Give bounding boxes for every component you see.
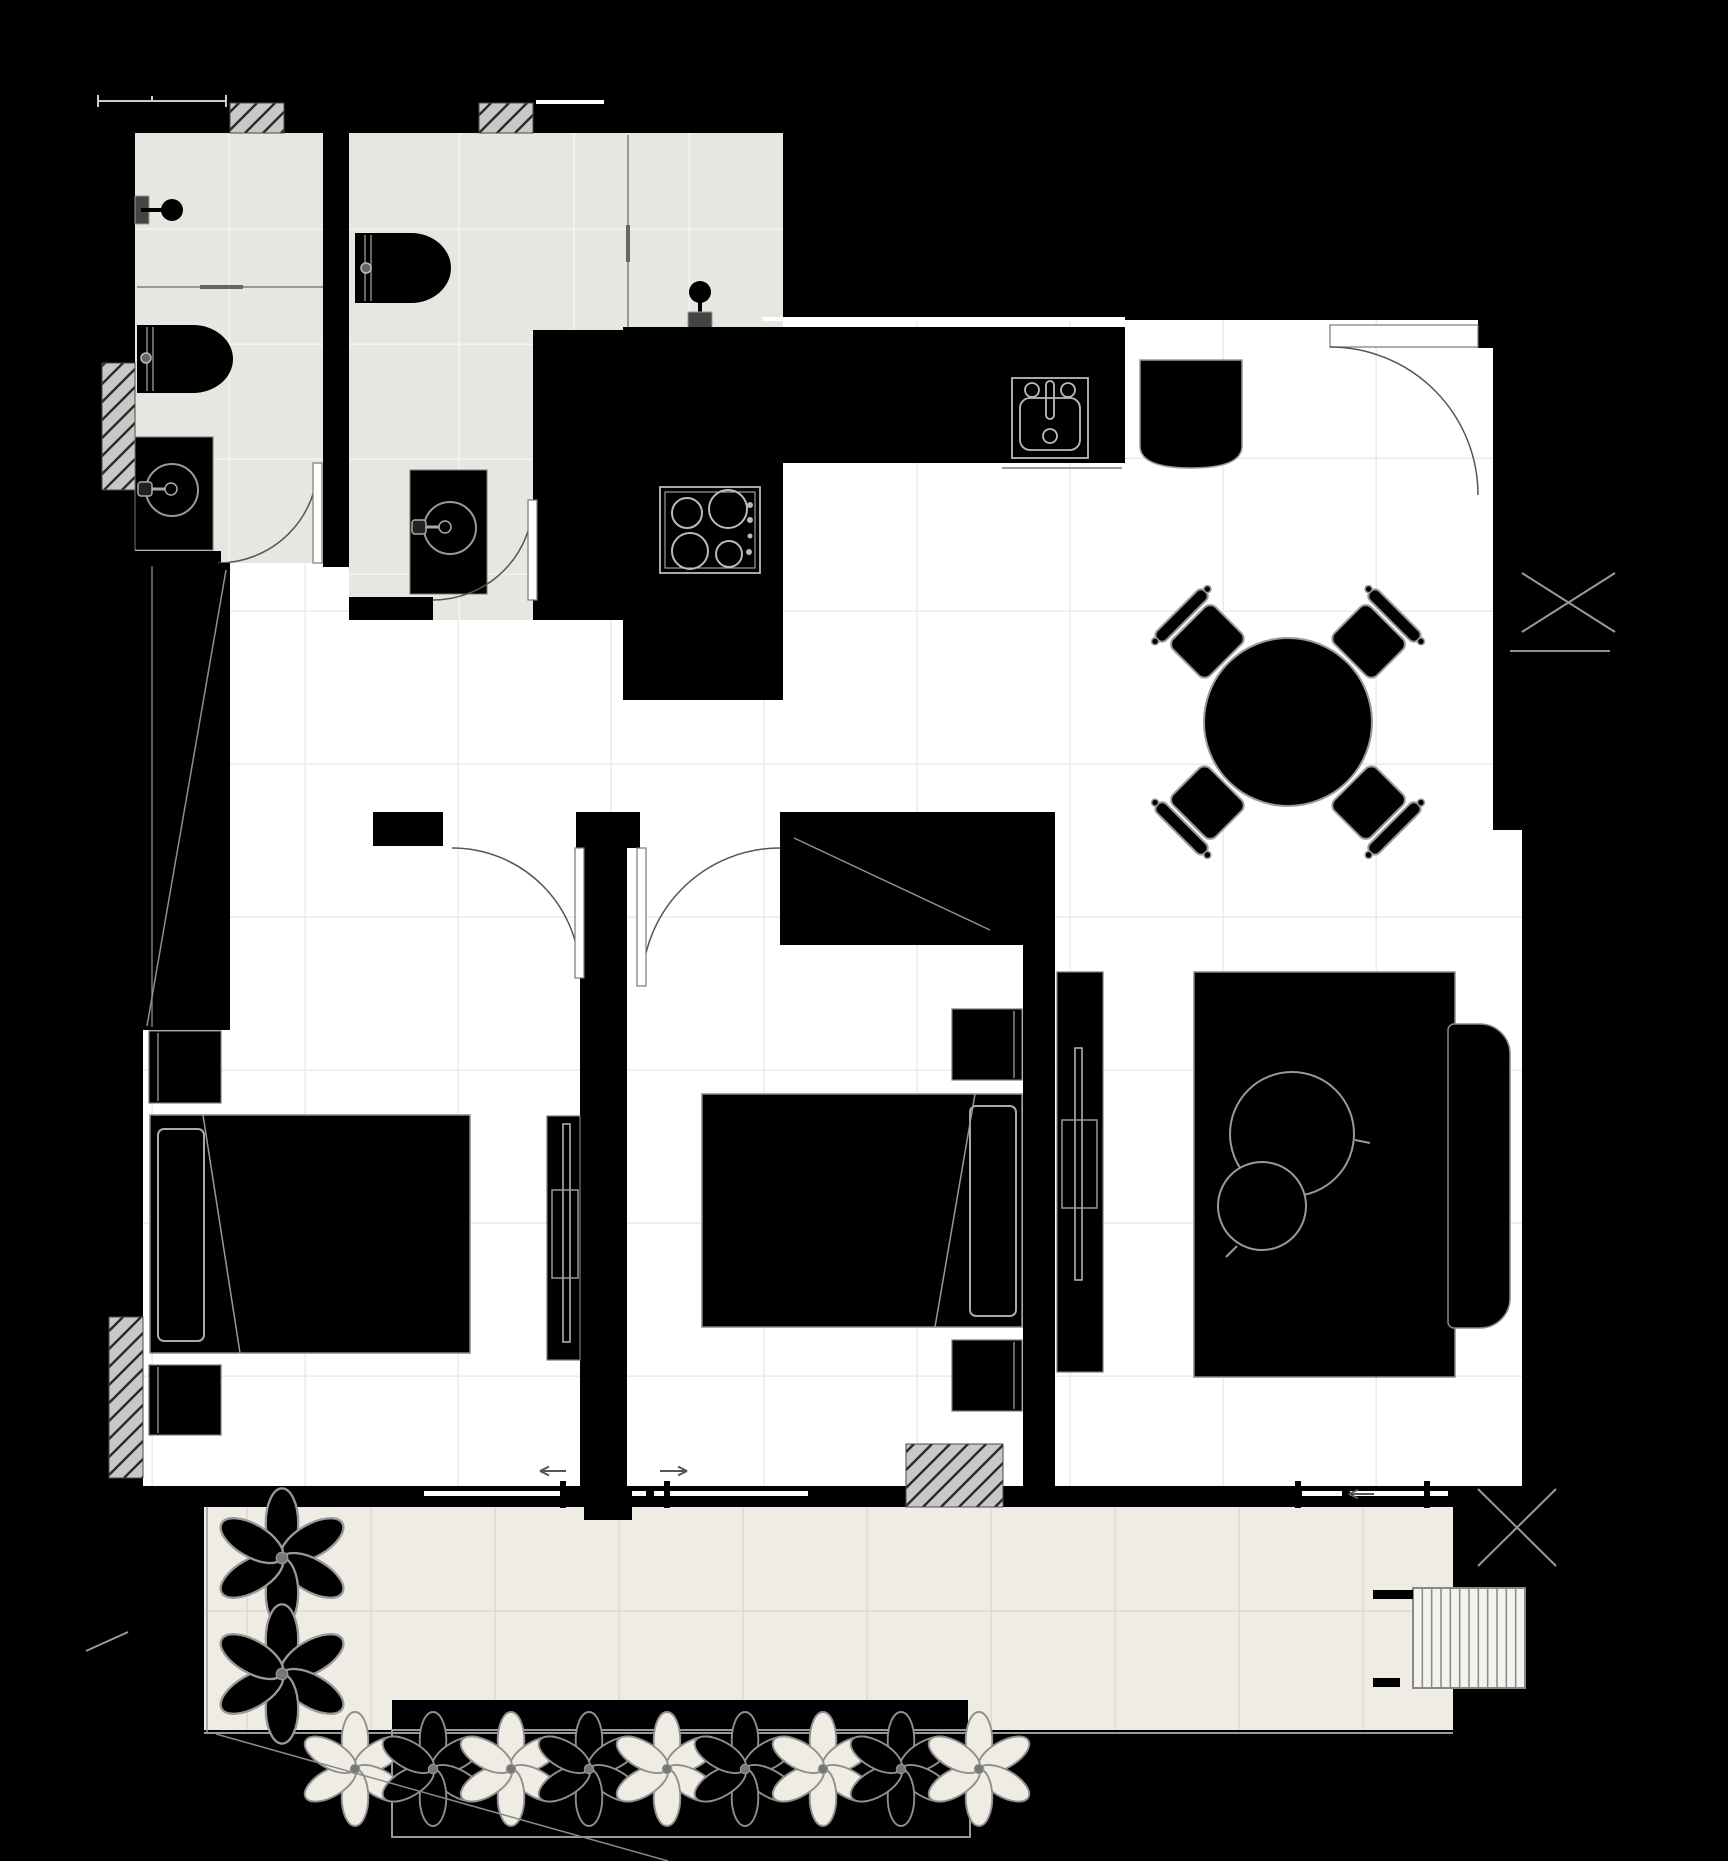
floor-plan-canvas [0, 0, 1728, 1861]
tv-console-2 [1057, 972, 1103, 1372]
tv-console-1 [547, 1116, 580, 1360]
entrance-side-wall [1478, 300, 1528, 348]
faucet-icon [138, 482, 152, 496]
dining-table [1204, 638, 1372, 806]
shower-2-head-icon [689, 281, 711, 303]
toilet-2 [355, 233, 451, 303]
tv-icon [563, 1124, 570, 1342]
bathroom-2-door-leaf [528, 500, 537, 600]
south-facade-wall [204, 1486, 1455, 1507]
fridge [1140, 360, 1242, 468]
bedroom-1-door-leaf [575, 848, 584, 978]
sill-line-top2 [536, 100, 604, 104]
kitchen-sink [1012, 378, 1088, 458]
tv-icon [1075, 1048, 1082, 1280]
planter-hedge [392, 1700, 968, 1730]
hall-south-wall-west [373, 812, 443, 846]
vanity-2 [410, 470, 487, 594]
faucet-icon [412, 520, 426, 534]
entrance-door-leaf [1330, 325, 1478, 347]
bedroom-2-door-leaf [637, 848, 646, 986]
sill-line-kitchen [762, 317, 1125, 321]
bedroom-2-closet-block [780, 812, 1023, 945]
hall-door-pillar [576, 812, 640, 848]
bathroom-1-door-leaf [313, 463, 322, 563]
wall-between-bathrooms [323, 133, 349, 567]
double-bed-2 [702, 1094, 1022, 1327]
stair-railing [1373, 1678, 1400, 1687]
bathroom-2-south-wall [349, 597, 433, 620]
cooktop [660, 487, 760, 573]
bedroom-partition-wall [580, 846, 627, 1486]
slide-track [424, 1491, 560, 1496]
shower-head-icon [161, 199, 183, 221]
nightstand [952, 1009, 1022, 1080]
hallway-floor-east [349, 605, 580, 846]
pier-top-1 [230, 103, 284, 133]
pier-west-lower [109, 1317, 143, 1478]
balcony-floor [204, 1507, 1453, 1730]
pier-south [906, 1444, 1003, 1507]
pier-top-2 [479, 103, 533, 133]
bathroom-2-east-wall [533, 330, 623, 620]
double-bed-1 [150, 1115, 470, 1353]
nightstand [149, 1031, 221, 1103]
south-facade-center-pier [584, 1486, 632, 1520]
shower-2-valve-icon [688, 312, 712, 328]
stair-railing [1373, 1590, 1413, 1599]
nightstand [952, 1340, 1022, 1411]
nightstand [149, 1365, 221, 1435]
bedroom-2-living-wall [1023, 812, 1055, 1486]
slide-track [632, 1491, 808, 1496]
toilet-1 [137, 325, 233, 393]
pier-west-upper [102, 363, 135, 490]
floor-plan-page [0, 0, 1728, 1861]
wardrobe-1 [140, 563, 230, 1030]
vanity-1 [135, 437, 213, 550]
coffee-table-small [1218, 1162, 1306, 1250]
sofa [1448, 1024, 1510, 1328]
